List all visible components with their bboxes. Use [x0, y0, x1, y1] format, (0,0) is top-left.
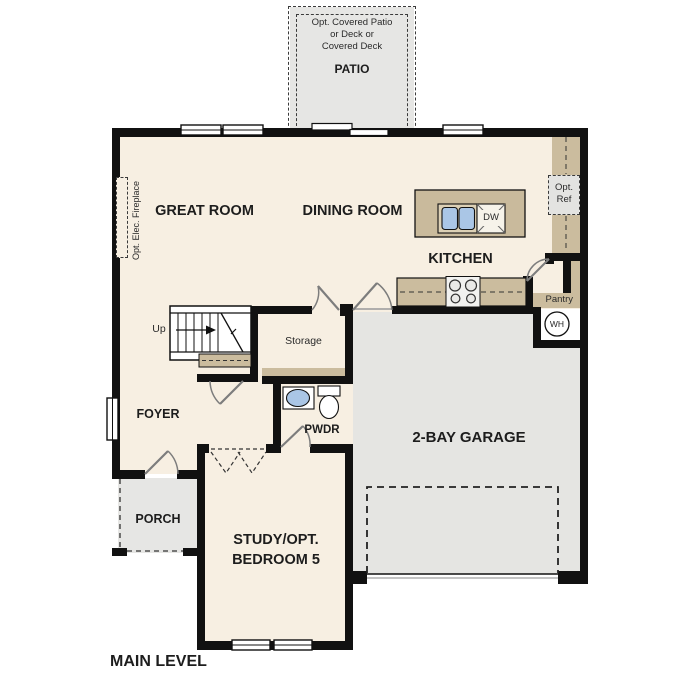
window-foyer — [107, 398, 118, 440]
foyer-label: FOYER — [122, 406, 194, 422]
door-garage-entry — [353, 283, 392, 310]
door-storage — [312, 286, 339, 310]
study-label: STUDY/OPT. BEDROOM 5 — [215, 531, 337, 570]
main-level-title: MAIN LEVEL — [110, 652, 270, 673]
storage-label: Storage — [262, 335, 345, 347]
sliding-patio-door — [312, 124, 388, 136]
window-dining — [443, 125, 483, 135]
door-understair-closet — [210, 381, 243, 404]
pantry-label: Pantry — [527, 294, 573, 305]
powder-toilet — [318, 386, 340, 419]
powder-label: PWDR — [290, 423, 354, 438]
range-cooktop — [446, 277, 480, 308]
garage-label: 2-BAY GARAGE — [412, 428, 526, 448]
door-pantry-corner — [527, 259, 549, 281]
water-heater-label: WH — [546, 319, 568, 329]
porch-label: PORCH — [122, 511, 194, 527]
door-front-entry — [145, 451, 178, 474]
window-great-room-1 — [181, 125, 221, 135]
staircase — [170, 306, 251, 360]
window-great-room-2 — [223, 125, 263, 135]
dishwasher-label: DW — [478, 212, 504, 223]
understair-closet — [199, 354, 251, 367]
stairs-up-label: Up — [147, 323, 171, 335]
kitchen-counter-bottom — [397, 277, 526, 308]
sink-basin-left — [442, 208, 458, 230]
powder-sink — [283, 387, 314, 409]
floor-plan: Opt. Covered Patio or Deck or Covered De… — [0, 0, 687, 687]
study-double-doors — [211, 449, 266, 473]
garage-door — [367, 487, 558, 578]
great-room-label: GREAT ROOM — [152, 202, 257, 222]
kitchen-label: KITCHEN — [408, 250, 513, 269]
window-study-2 — [274, 640, 312, 650]
window-study-1 — [232, 640, 270, 650]
dining-room-label: DINING ROOM — [300, 202, 405, 222]
kitchen-island — [415, 190, 525, 237]
sink-basin-right — [459, 208, 475, 230]
